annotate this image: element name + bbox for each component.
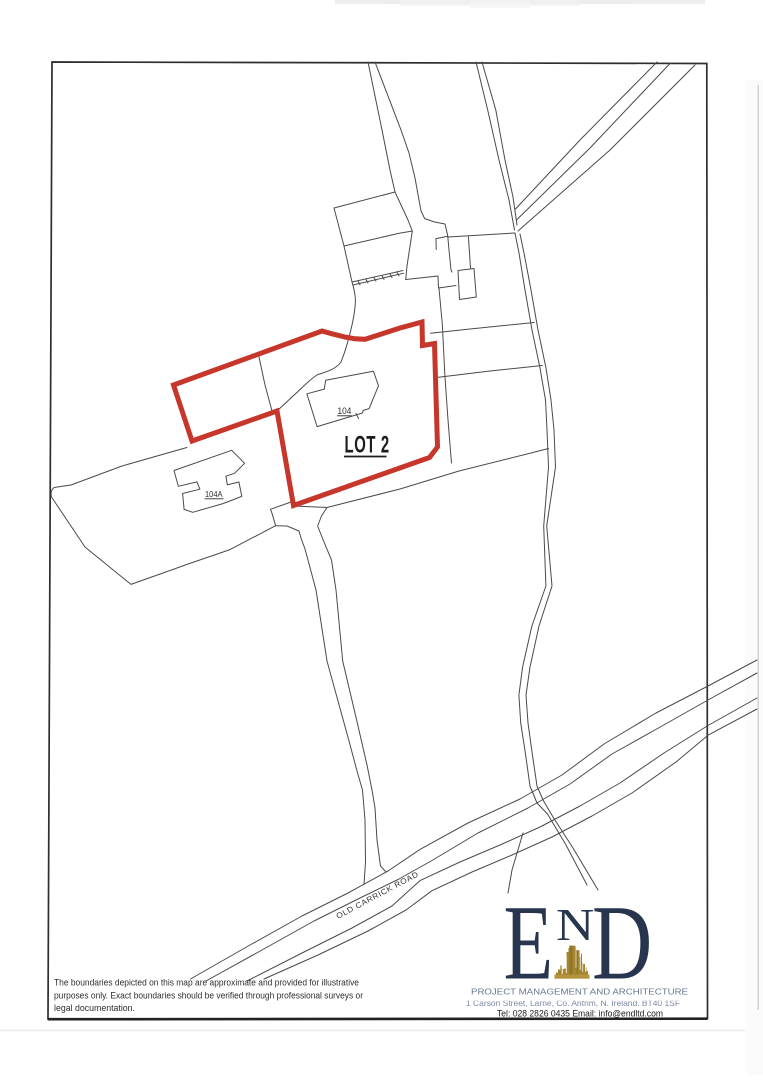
svg-text:The boundaries depicted on thi: The boundaries depicted on this map are … — [54, 978, 359, 989]
svg-text:E: E — [504, 883, 554, 1002]
svg-text:104A: 104A — [205, 489, 223, 499]
svg-text:104: 104 — [338, 406, 352, 416]
svg-text:purposes only. Exact boundarie: purposes only. Exact boundaries should b… — [54, 991, 364, 1002]
svg-text:LOT 2: LOT 2 — [345, 432, 390, 458]
svg-text:Tel: 028 2826 0435 Email: in: Tel: 028 2826 0435 Email: info@endltd.co… — [497, 1009, 663, 1019]
svg-text:D: D — [592, 883, 652, 1002]
svg-text:N: N — [556, 899, 594, 950]
svg-text:legal documentation.: legal documentation. — [54, 1003, 135, 1014]
svg-text:PROJECT MANAGEMENT AND ARCH: PROJECT MANAGEMENT AND ARCHITECTURE — [471, 987, 688, 997]
